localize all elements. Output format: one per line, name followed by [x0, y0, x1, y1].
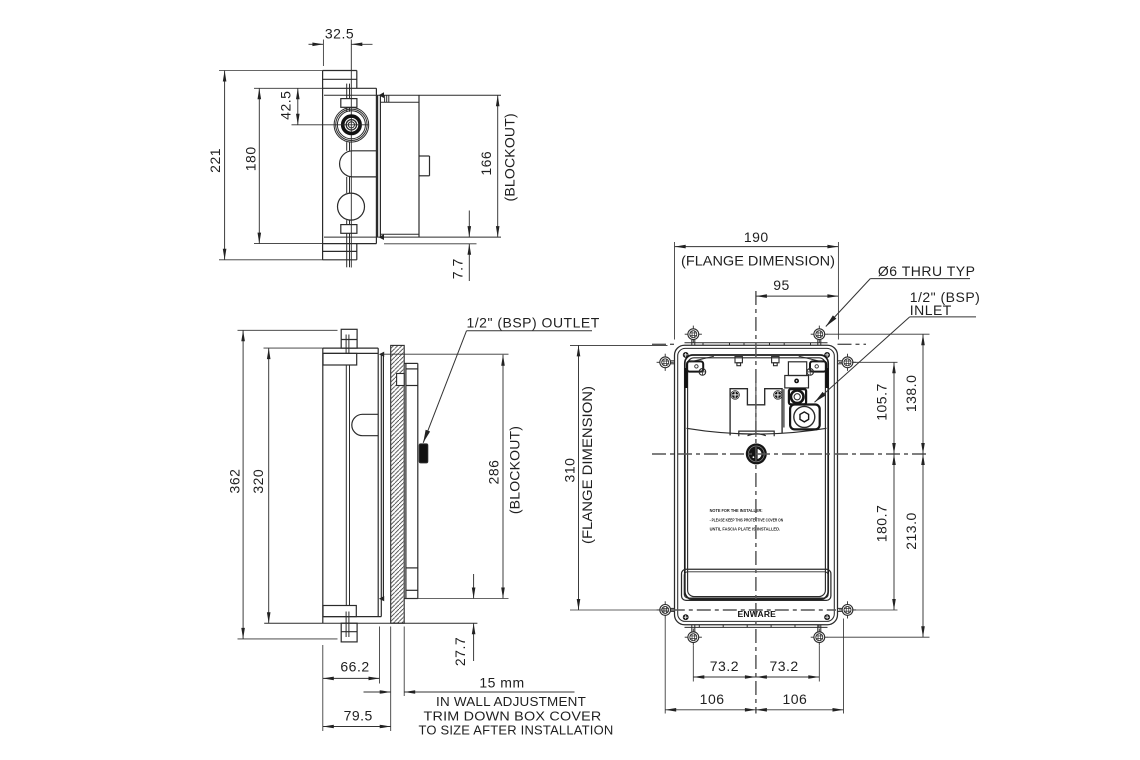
svg-text:UNTIL FASCIA PLATE IS INSTALL: UNTIL FASCIA PLATE IS INSTALLED. [710, 526, 781, 531]
svg-text:(BLOCKOUT): (BLOCKOUT) [506, 426, 522, 514]
svg-text:TO SIZE AFTER INSTALLATION: TO SIZE AFTER INSTALLATION [419, 722, 614, 737]
svg-text:95: 95 [773, 277, 790, 293]
svg-text:27.7: 27.7 [452, 637, 468, 666]
svg-text:138.0: 138.0 [903, 375, 919, 413]
svg-text:362: 362 [227, 469, 243, 494]
svg-text:73.2: 73.2 [769, 658, 798, 674]
svg-text:NOTE FOR THE INSTALLER:: NOTE FOR THE INSTALLER: [710, 508, 763, 513]
svg-text:106: 106 [782, 691, 807, 707]
svg-text:Ø6 THRU TYP: Ø6 THRU TYP [878, 263, 976, 279]
svg-text:INLET: INLET [910, 302, 952, 318]
svg-text:79.5: 79.5 [344, 708, 373, 724]
svg-text:15 mm: 15 mm [479, 675, 524, 691]
svg-text:42.5: 42.5 [277, 91, 293, 120]
svg-text:221: 221 [207, 148, 223, 173]
svg-text:66.2: 66.2 [340, 658, 369, 674]
svg-text:TRIM DOWN BOX COVER: TRIM DOWN BOX COVER [424, 708, 602, 723]
svg-text:320: 320 [250, 469, 266, 494]
svg-text:190: 190 [744, 229, 769, 245]
svg-text:(BLOCKOUT): (BLOCKOUT) [502, 113, 518, 201]
svg-text:- PLEASE KEEP THIS PROTECTIVE: - PLEASE KEEP THIS PROTECTIVE COVER ON [710, 517, 784, 522]
svg-text:32.5: 32.5 [325, 26, 354, 42]
svg-text:73.2: 73.2 [710, 658, 739, 674]
svg-text:105.7: 105.7 [873, 383, 889, 421]
svg-text:213.0: 213.0 [903, 512, 919, 550]
svg-text:310: 310 [562, 458, 578, 483]
svg-text:180: 180 [243, 146, 259, 171]
svg-text:166: 166 [478, 151, 494, 176]
svg-text:IN WALL ADJUSTMENT: IN WALL ADJUSTMENT [436, 694, 586, 709]
svg-text:106: 106 [700, 691, 725, 707]
svg-text:(FLANGE DIMENSION): (FLANGE DIMENSION) [681, 253, 835, 269]
svg-text:180.7: 180.7 [873, 505, 889, 543]
svg-text:7.7: 7.7 [450, 258, 466, 279]
svg-text:286: 286 [486, 460, 502, 485]
svg-text:1/2" (BSP) OUTLET: 1/2" (BSP) OUTLET [467, 314, 600, 330]
svg-text:(FLANGE DIMENSION): (FLANGE DIMENSION) [579, 386, 595, 544]
